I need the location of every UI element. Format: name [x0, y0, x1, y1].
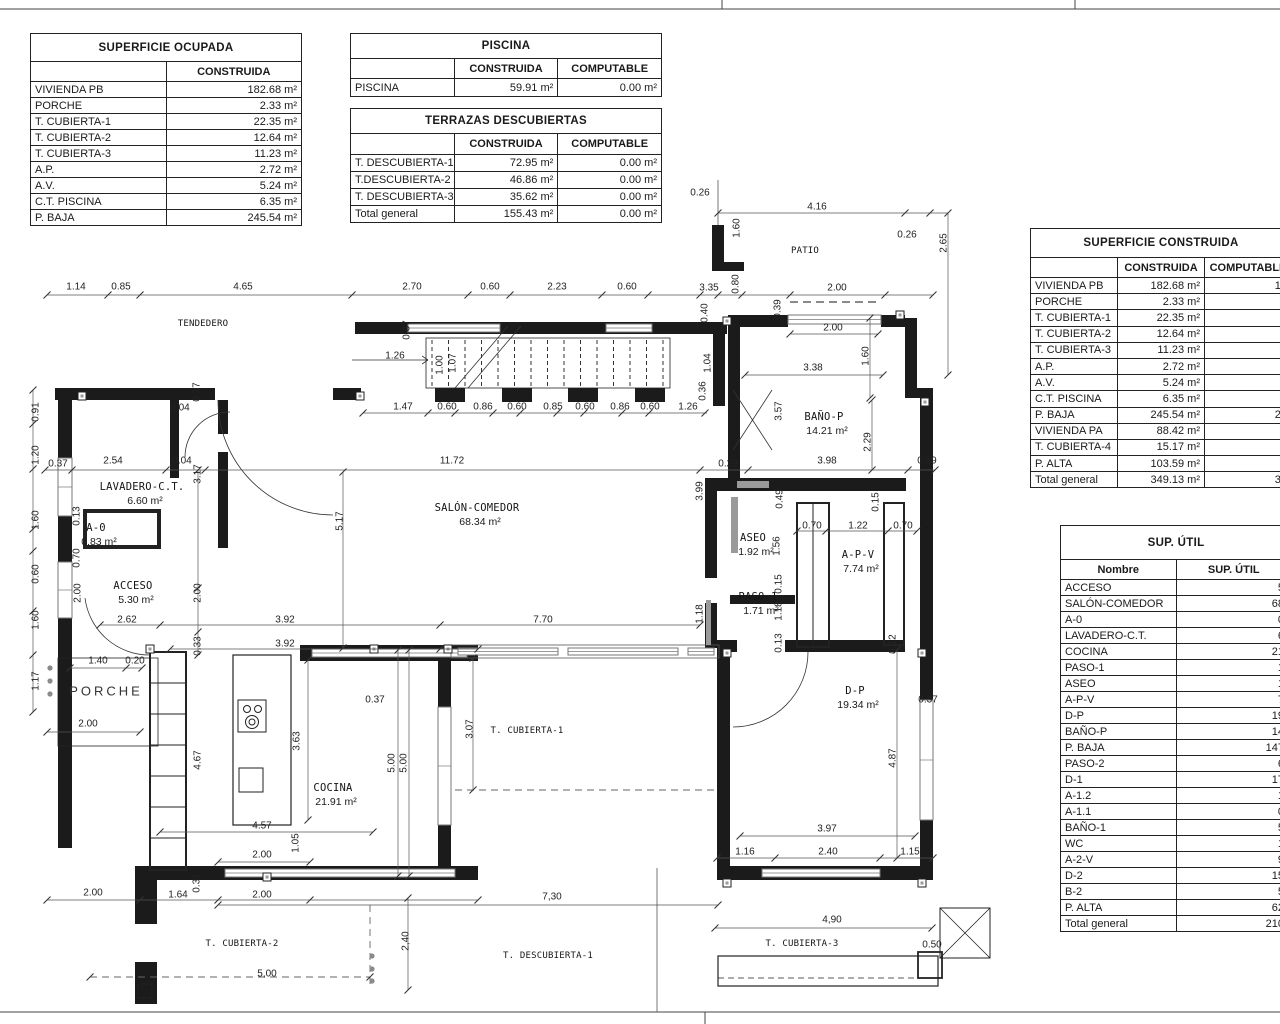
table-row: T. CUBIERTA-212.64 m²	[31, 130, 302, 146]
column-header: COMPUTABLE	[1205, 258, 1280, 278]
cell-name: P. BAJA	[1031, 407, 1118, 423]
cell-value: 59.91 m²	[454, 79, 558, 97]
table-title: TERRAZAS DESCUBIERTAS	[351, 109, 662, 134]
cell-name: BAÑO-P	[1061, 724, 1177, 740]
dimension-label: 1.60	[732, 218, 743, 237]
dimension-label: 0.60	[480, 282, 499, 293]
dimension-label: 0.15	[871, 492, 882, 511]
table-row: T. CUBIERTA-415.17 m²	[1031, 439, 1280, 455]
cell-value: 11.23 m²	[166, 146, 302, 162]
dimension-label: 1.04	[703, 353, 714, 372]
dimension-label: 3.17	[193, 464, 204, 483]
cell-value: 5.24 m²	[166, 178, 302, 194]
dimension-label: 3.38	[803, 363, 822, 374]
table-row: T.DESCUBIERTA-246.86 m²0.00 m²	[351, 172, 662, 189]
cell-name: P. BAJA	[1061, 740, 1177, 756]
table-row: B-25.	[1061, 884, 1280, 900]
pillar-marker-dot	[81, 395, 84, 398]
dimension-label: 0.12	[888, 634, 899, 653]
table-sup-util: SUP. ÚTILNombreSUP. ÚTILACCESO5.SALÓN-CO…	[1060, 525, 1280, 932]
table-row: P. BAJA245.54 m²21	[1031, 407, 1280, 423]
table-row: T. CUBIERTA-122.35 m²	[31, 114, 302, 130]
cell-value: 147.	[1176, 740, 1280, 756]
cell-name: A.V.	[31, 178, 167, 194]
table-row: P. ALTA62.	[1061, 900, 1280, 916]
dimension-label: 3.92	[275, 615, 294, 626]
room-area-label: 14.21 m²	[806, 425, 847, 437]
table-row: Total general349.13 m²31	[1031, 472, 1280, 488]
cell-value: 88.42 m²	[1118, 423, 1205, 439]
dimension-label: 2.00	[78, 719, 97, 730]
dimension-label: 5.00	[399, 753, 410, 772]
dimension-label: 3.98	[817, 456, 836, 467]
cell-value: 103.59 m²	[1118, 456, 1205, 472]
dimension-label: 0.04	[172, 456, 191, 467]
table-title: SUPERFICIE OCUPADA	[31, 34, 302, 62]
dimension-label: 0.70	[802, 521, 821, 532]
cell-value: 21	[1205, 407, 1280, 423]
table-superficie-ocupada: SUPERFICIE OCUPADACONSTRUIDAVIVIENDA PB1…	[30, 33, 302, 226]
cell-name: PORCHE	[31, 98, 167, 114]
table-row: D-117.	[1061, 772, 1280, 788]
column-dot	[369, 953, 374, 958]
dimension-label: 7,30	[542, 892, 561, 903]
dimension-label: 7.70	[533, 615, 552, 626]
table-row: P. BAJA147.	[1061, 740, 1280, 756]
plan-line	[422, 360, 428, 364]
dimension-label: 0.60	[640, 402, 659, 413]
dimension-label: 1.20	[31, 445, 42, 464]
column-header	[31, 62, 167, 82]
cell-name: P. ALTA	[1061, 900, 1177, 916]
dimension-label: 2.65	[939, 233, 950, 252]
cell-value	[1205, 294, 1280, 310]
cell-value	[1205, 375, 1280, 391]
column-header: CONSTRUIDA	[166, 62, 302, 82]
dimension-label: 1.16	[735, 847, 754, 858]
drawing-sheet: { "tables": { "superficie_ocupada": { "t…	[0, 0, 1280, 1024]
cell-name: D-P	[1061, 708, 1177, 724]
dimension-label: 0.33	[193, 636, 204, 655]
dimension-label: 2.00	[83, 888, 102, 899]
dimension-label: 5,00	[257, 969, 276, 980]
dimension-label: 11.72	[440, 456, 464, 467]
column-header: COMPUTABLE	[558, 59, 662, 79]
cell-name: PASO-2	[1061, 756, 1177, 772]
dimension-label: 0.29	[718, 459, 737, 470]
table-row: SALÓN-COMEDOR68.	[1061, 596, 1280, 612]
dimension-label: 2.00	[73, 583, 84, 602]
wall	[712, 225, 724, 267]
dimension-label: 0.91	[31, 402, 42, 421]
cell-name: A-1.2	[1061, 788, 1177, 804]
table-title: SUPERFICIE CONSTRUIDA	[1031, 229, 1280, 258]
door-arc	[733, 652, 808, 727]
wall	[905, 318, 917, 398]
room-label: A-P-V	[842, 549, 875, 561]
pillar-marker-dot	[726, 320, 729, 323]
dimension-label: 2.62	[117, 615, 136, 626]
room-area-label: 7.74 m²	[843, 563, 879, 575]
room-label: PORCHE	[69, 684, 143, 699]
wall	[713, 322, 725, 406]
cooktop-burner	[244, 706, 251, 713]
room-label: LAVADERO-C.T.	[100, 481, 185, 493]
cell-value: 6.	[1176, 628, 1280, 644]
cell-name: P. ALTA	[1031, 456, 1118, 472]
cell-value: 0.00 m²	[558, 172, 662, 189]
table-title: SUP. ÚTIL	[1061, 526, 1280, 560]
dimension-label: 1.15	[900, 847, 919, 858]
dimension-label: 0.04	[170, 403, 189, 414]
table-superficie-construida: SUPERFICIE CONSTRUIDACONSTRUIDACOMPUTABL…	[1030, 228, 1280, 488]
cell-name: T. CUBIERTA-4	[1031, 439, 1118, 455]
table-row: ASEO1.	[1061, 676, 1280, 692]
column-header: CONSTRUIDA	[1118, 258, 1205, 278]
table-row: PASO-26.	[1061, 756, 1280, 772]
dimension-label: 4.65	[233, 282, 252, 293]
room-area-label: 68.34 m²	[459, 516, 500, 528]
dimension-label: 1.26	[385, 351, 404, 362]
dimension-label: 1.47	[393, 402, 412, 413]
cell-value: 68.	[1176, 596, 1280, 612]
dimension-label: 0.40	[700, 303, 711, 322]
cell-name: T. DESCUBIERTA-3	[351, 189, 455, 206]
dimension-label: 3.35	[699, 283, 718, 294]
table-row: C.T. PISCINA6.35 m²	[1031, 391, 1280, 407]
cell-value: 46.86 m²	[454, 172, 558, 189]
dimension-label: 0.37	[402, 320, 413, 339]
dimension-label: 0.13	[774, 633, 785, 652]
room-label: ASEO	[740, 532, 766, 544]
dimension-label: 0.15	[774, 574, 785, 593]
cell-value: 1.	[1176, 660, 1280, 676]
cell-name: Total general	[351, 206, 455, 223]
table-row: T. CUBIERTA-122.35 m²1	[1031, 310, 1280, 326]
dimension-label: 3.63	[292, 731, 303, 750]
cell-value: 1.	[1176, 788, 1280, 804]
dimension-label: 1.07	[448, 353, 459, 372]
dimension-label: 0.60	[507, 402, 526, 413]
cell-value: 245.54 m²	[166, 210, 302, 226]
dimension-label: 0.37	[48, 459, 67, 470]
table-row: Total general210.	[1061, 916, 1280, 932]
cell-name: A-2-V	[1061, 852, 1177, 868]
cell-name: A-0	[1061, 612, 1177, 628]
pillar-marker-dot	[149, 648, 152, 651]
wall	[58, 400, 72, 458]
dimension-label: 0.60	[575, 402, 594, 413]
dimension-label: 1.56	[772, 536, 783, 555]
dimension-label: 4.16	[807, 202, 826, 213]
table-row: ACCESO5.	[1061, 580, 1280, 596]
wall	[58, 618, 72, 848]
dimension-label: 0.85	[543, 402, 562, 413]
column-header	[351, 134, 455, 155]
room-label: T. CUBIERTA-3	[765, 939, 838, 949]
dimension-label: 2.29	[863, 432, 874, 451]
dimension-label: 0.20	[125, 656, 144, 667]
cell-name: P. BAJA	[31, 210, 167, 226]
door-leaf	[731, 497, 738, 553]
table-row: P. BAJA245.54 m²	[31, 210, 302, 226]
cell-value: 2.72 m²	[1118, 358, 1205, 374]
dimension-label: 0.39	[773, 299, 784, 318]
column-header: CONSTRUIDA	[454, 59, 558, 79]
wall	[135, 866, 157, 924]
room-label: A-0	[86, 522, 106, 534]
table-row: A.P.2.72 m²	[31, 162, 302, 178]
cell-value: 1.	[1176, 836, 1280, 852]
cell-value: 5.24 m²	[1118, 375, 1205, 391]
cell-name: C.T. PISCINA	[1031, 391, 1118, 407]
cell-value: 6.	[1176, 756, 1280, 772]
wall	[502, 388, 532, 402]
porch-outline	[58, 658, 158, 746]
cell-value: 12.64 m²	[1118, 326, 1205, 342]
cell-value: 12.64 m²	[166, 130, 302, 146]
cell-value: 182.68 m²	[1118, 278, 1205, 294]
column-dot	[369, 966, 374, 971]
table-row: VIVIENDA PA88.42 m²8	[1031, 423, 1280, 439]
table-row: Total general155.43 m²0.00 m²	[351, 206, 662, 223]
dimension-label: 4,90	[822, 915, 841, 926]
cell-value: 0.00 m²	[558, 206, 662, 223]
wall	[435, 388, 465, 402]
table-row: A-2-V9.	[1061, 852, 1280, 868]
table-row: VIVIENDA PB182.68 m²	[31, 82, 302, 98]
cell-name: C.T. PISCINA	[31, 194, 167, 210]
pillar-marker-dot	[899, 314, 902, 317]
cell-value: 21.	[1176, 644, 1280, 660]
cell-value	[1205, 342, 1280, 358]
cell-value: 0.	[1176, 612, 1280, 628]
wall	[218, 452, 228, 548]
cell-value: 15.	[1176, 868, 1280, 884]
dimension-label: 0.86	[473, 402, 492, 413]
wall	[706, 478, 906, 491]
cell-name: T. CUBIERTA-3	[1031, 342, 1118, 358]
kitchen-island	[233, 655, 291, 825]
dimension-label: 3.99	[695, 481, 706, 500]
room-label: ACCESO	[113, 580, 152, 592]
cell-name: T. CUBIERTA-1	[31, 114, 167, 130]
table-row: T. DESCUBIERTA-172.95 m²0.00 m²	[351, 155, 662, 172]
cell-name: T. CUBIERTA-3	[31, 146, 167, 162]
room-label: PASO-1	[738, 591, 777, 603]
cell-value: 5.	[1176, 820, 1280, 836]
sliding-door	[737, 481, 769, 488]
table-row: A.V.5.24 m²	[31, 178, 302, 194]
room-label: BAÑO-P	[804, 411, 843, 423]
column-header	[1031, 258, 1118, 278]
cell-value: 349.13 m²	[1118, 472, 1205, 488]
wall	[58, 516, 72, 562]
dimension-label: 2.00	[827, 283, 846, 294]
door-arc	[85, 598, 150, 655]
column-dot	[47, 691, 52, 696]
room-label: COCINA	[313, 782, 352, 794]
cell-name: Total general	[1061, 916, 1177, 932]
table-row: A-1.21.	[1061, 788, 1280, 804]
cell-value: 62.	[1176, 900, 1280, 916]
dimension-label: 0.37	[192, 382, 203, 401]
dimension-label: 2.40	[818, 847, 837, 858]
table-row: PISCINA59.91 m²0.00 m²	[351, 79, 662, 97]
cell-name: D-1	[1061, 772, 1177, 788]
cell-value: 182.68 m²	[166, 82, 302, 98]
cell-name: COCINA	[1061, 644, 1177, 660]
dimension-label: 0.60	[617, 282, 636, 293]
cell-name: T. CUBIERTA-2	[1031, 326, 1118, 342]
room-label: T. CUBIERTA-2	[205, 939, 278, 949]
dimension-label: 0.50	[922, 940, 941, 951]
door-arc	[218, 400, 333, 515]
cell-name: D-2	[1061, 868, 1177, 884]
dimension-label: 3.97	[817, 824, 836, 835]
cell-name: A-1.1	[1061, 804, 1177, 820]
dimension-label: 1.60	[861, 346, 872, 365]
room-label: T. DESCUBIERTA-1	[503, 951, 593, 961]
dimension-label: 2,40	[401, 931, 412, 950]
table-row: COCINA21.	[1061, 644, 1280, 660]
room-label: SALÓN-COMEDOR	[435, 502, 520, 514]
cell-name: VIVIENDA PB	[31, 82, 167, 98]
room-label: TENDEDERO	[178, 319, 229, 329]
cell-name: T. CUBIERTA-2	[31, 130, 167, 146]
dimension-label: 2.23	[547, 282, 566, 293]
column-dot	[47, 678, 52, 683]
dimension-label: 1.26	[678, 402, 697, 413]
cell-name: VIVIENDA PA	[1031, 423, 1118, 439]
cell-name: PORCHE	[1031, 294, 1118, 310]
dimension-label: 3.92	[275, 639, 294, 650]
dimension-label: 2.54	[103, 456, 122, 467]
wall	[705, 478, 717, 578]
cell-value: 7.	[1176, 692, 1280, 708]
table-row: D-215.	[1061, 868, 1280, 884]
cooktop-burner	[249, 719, 255, 725]
cell-value: 14.	[1176, 724, 1280, 740]
cell-value: 17.	[1176, 772, 1280, 788]
table-piscina: PISCINACONSTRUIDACOMPUTABLEPISCINA59.91 …	[350, 33, 662, 97]
dimension-label: 0.37	[365, 695, 384, 706]
dimension-label: 5.17	[335, 511, 346, 530]
dimension-label: 1.17	[31, 671, 42, 690]
cell-value: 31	[1205, 472, 1280, 488]
cell-name: SALÓN-COMEDOR	[1061, 596, 1177, 612]
table-row: A.P.2.72 m²	[1031, 358, 1280, 374]
table-row: A.V.5.24 m²	[1031, 375, 1280, 391]
table-terrazas-descubiertas: TERRAZAS DESCUBIERTASCONSTRUIDACOMPUTABL…	[350, 108, 662, 223]
wall	[568, 388, 598, 402]
table-row: T. CUBIERTA-311.23 m²	[1031, 342, 1280, 358]
dimension-label: 4.87	[888, 748, 899, 767]
room-label: PATIO	[791, 246, 819, 256]
cell-value: 18	[1205, 278, 1280, 294]
wall	[717, 648, 730, 868]
room-label: D-P	[845, 685, 865, 697]
table-row: BAÑO-P14.	[1061, 724, 1280, 740]
cell-name: A.P.	[1031, 358, 1118, 374]
wall	[905, 388, 933, 398]
wall	[920, 820, 933, 878]
cell-value: 155.43 m²	[454, 206, 558, 223]
cell-value: 35.62 m²	[454, 189, 558, 206]
dimension-label: 1.40	[88, 656, 107, 667]
dimension-label: 1.14	[66, 282, 85, 293]
dimension-label: 1.22	[848, 521, 867, 532]
wall	[712, 262, 744, 271]
cell-value: 8	[1205, 423, 1280, 439]
dimension-label: 0.39	[917, 456, 936, 467]
room-area-label: 21.91 m²	[315, 796, 356, 808]
cell-value: 5.	[1176, 580, 1280, 596]
dimension-label: 1.18	[774, 601, 785, 620]
dimension-label: 0.37	[918, 695, 937, 706]
room-area-label: 5.30 m²	[118, 594, 154, 606]
dimension-label: 0.13	[72, 506, 83, 525]
cell-name: ASEO	[1061, 676, 1177, 692]
dimension-label: 1.00	[435, 355, 446, 374]
dimension-label: 1.60	[31, 610, 42, 629]
column-header: CONSTRUIDA	[454, 134, 558, 155]
cell-value: 0.	[1176, 804, 1280, 820]
dimension-label: 4.57	[252, 821, 271, 832]
dimension-label: 0.26	[897, 230, 916, 241]
pillar-marker-dot	[726, 882, 729, 885]
cell-value: 245.54 m²	[1118, 407, 1205, 423]
column-header	[351, 59, 455, 79]
dimension-label: 0.70	[893, 521, 912, 532]
cell-value: 22.35 m²	[166, 114, 302, 130]
dimension-label: 0.49	[775, 489, 786, 508]
sink	[239, 768, 263, 792]
dimension-label: 0.80	[731, 274, 742, 293]
cell-name: LAVADERO-C.T.	[1061, 628, 1177, 644]
column-header: SUP. ÚTIL	[1176, 560, 1280, 580]
pillar-marker-dot	[266, 876, 269, 879]
pillar-marker-dot	[726, 652, 729, 655]
cell-value: 9	[1205, 456, 1280, 472]
dimension-label: 2.00	[252, 890, 271, 901]
cell-name: T. DESCUBIERTA-1	[351, 155, 455, 172]
table-row: A-1.10.	[1061, 804, 1280, 820]
dimension-label: 0.85	[111, 282, 130, 293]
door-leaf	[706, 600, 711, 645]
dimension-label: 2.00	[193, 583, 204, 602]
dimension-label: 0.36	[698, 381, 709, 400]
dimension-label: 0.31	[192, 873, 203, 892]
pergola-beam	[718, 956, 938, 986]
cell-value: 15.17 m²	[1118, 439, 1205, 455]
pillar-marker-dot	[921, 652, 924, 655]
table-row: T. DESCUBIERTA-335.62 m²0.00 m²	[351, 189, 662, 206]
dimension-label: 1.18	[695, 604, 706, 623]
dimension-label: 0.60	[31, 564, 42, 583]
room-area-label: 19.34 m²	[837, 699, 878, 711]
cell-value: 210.	[1176, 916, 1280, 932]
cell-name: T. CUBIERTA-1	[1031, 310, 1118, 326]
table-title: PISCINA	[351, 34, 662, 59]
table-row: A-P-V7.	[1061, 692, 1280, 708]
cell-value: 5.	[1176, 884, 1280, 900]
cell-name: T.DESCUBIERTA-2	[351, 172, 455, 189]
room-label: T. CUBIERTA-1	[490, 726, 563, 736]
pillar-marker-dot	[921, 882, 924, 885]
column-header: Nombre	[1061, 560, 1177, 580]
table-row: BAÑO-15.	[1061, 820, 1280, 836]
